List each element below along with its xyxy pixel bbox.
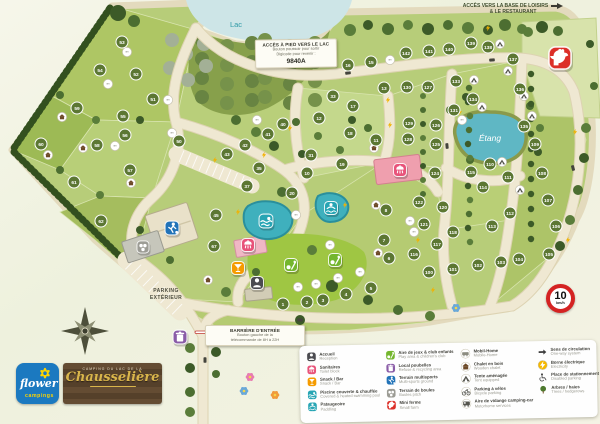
reception-icon [251,277,265,292]
svg-text:5: 5 [370,286,373,292]
rv-icon [462,399,472,409]
pitch-43: 43 [221,148,233,160]
campsite-name: Chausselière [63,371,162,385]
legend-item: Borne électriqueElectricity [538,359,596,370]
pitch-142: 142 [400,47,412,59]
tent-marker [495,39,504,48]
shower-icon [307,364,317,374]
pitch-131: 131 [448,104,460,116]
pitch-61: 61 [68,176,80,188]
svg-text:109: 109 [531,142,539,148]
svg-text:7: 7 [383,238,386,244]
pitch-114: 114 [477,181,489,193]
paddling-icon [307,402,317,412]
pitch-103: 103 [495,256,507,268]
svg-text:121: 121 [420,222,428,228]
chalet-icon [461,361,471,371]
pitch-11: 11 [370,134,382,146]
svg-text:1: 1 [282,302,285,308]
pitch-60: 60 [35,138,47,150]
pitch-141: 141 [423,45,435,57]
multisport-ground-icon [165,221,180,237]
pitch-109: 109 [529,138,541,150]
pitch-106: 106 [550,220,562,232]
svg-text:4: 4 [345,292,348,298]
svg-text:3: 3 [322,298,325,304]
legend-item: Snack / BarSnack / Bar [307,376,379,388]
legend-item: Arbres / haiesTrees / hedgerows [538,384,596,395]
svg-text:104: 104 [515,257,523,263]
tent-marker [477,102,486,111]
pitch-137: 137 [507,53,519,65]
svg-text:42: 42 [242,143,248,149]
legend-column-2: Aire de jeux & club enfantsPlay area & c… [385,349,455,417]
svg-text:11: 11 [373,138,378,144]
pitch-121: 121 [418,218,430,230]
legend-item: Mobil-HomeMobile-Home [460,347,530,358]
svg-text:56: 56 [122,133,128,139]
flower-wordmark: flower [20,377,58,390]
pitch-104: 104 [513,253,525,265]
pitch-134: 134 [467,93,479,105]
mh-marker: MH [252,115,261,124]
svg-text:101: 101 [449,267,457,273]
legend-item: Parking à vélosBicycle parking [461,385,531,396]
play-icon [385,350,395,360]
svg-text:103: 103 [497,260,505,266]
bolt-icon [538,360,548,370]
pitch-115: 115 [465,166,477,178]
tent-marker [503,66,512,75]
pitch-110: 110 [484,158,496,170]
play-area-1-icon [285,259,299,274]
pitch-45: 45 [210,209,222,221]
rooster-icon [386,400,396,410]
mh-marker: MH [409,227,418,236]
pitch-5: 5 [365,282,377,294]
chalet-marker [78,143,87,152]
chalet-marker [203,275,212,284]
tree-icon [538,385,548,395]
chalet-marker [371,200,380,209]
svg-text:53: 53 [119,40,125,46]
pitch-135: 135 [518,120,530,132]
svg-text:136: 136 [516,87,524,93]
svg-text:20: 20 [289,191,295,197]
pitch-41: 41 [262,128,274,140]
pitch-8: 8 [380,204,392,216]
chalet-marker [373,248,382,257]
svg-text:118: 118 [449,230,457,236]
svg-text:100: 100 [425,270,433,276]
svg-text:133: 133 [452,79,460,85]
covered-pool-icon [259,214,274,230]
legend-item: Local poubellesRefuse & recycling area [386,361,454,372]
boules-pitch-icon [137,241,151,256]
pitch-102: 102 [472,259,484,271]
svg-text:6: 6 [388,256,391,262]
toilet-block-2-icon [394,164,408,179]
snack-bar-icon [232,262,246,277]
svg-text:112: 112 [506,211,514,217]
svg-text:12: 12 [316,116,322,122]
pitch-18: 18 [344,127,356,139]
leisure-base-sign: ACCÈS VERS LA BASE DE LOISIRS & LE RESTA… [444,3,582,16]
svg-text:62: 62 [98,219,104,225]
multisport-icon [386,375,396,385]
pitch-17: 17 [347,100,359,112]
pitch-57: 57 [124,164,136,176]
legend-item: Place de stationnement PMRDisabled parki… [538,371,596,382]
compass-rose [61,307,109,355]
pitch-107: 107 [542,194,554,206]
pitch-51: 51 [147,93,159,105]
trash-icon [386,363,396,373]
mh-marker: MH [333,273,342,282]
svg-text:40: 40 [280,122,286,128]
svg-text:107: 107 [544,198,552,204]
mh-marker: MH [457,115,466,124]
pitch-33: 33 [327,90,339,102]
pitch-112: 112 [504,207,516,219]
svg-text:108: 108 [538,171,546,177]
lake-gate-code: 9840A [258,57,334,65]
mh-marker: MH [293,282,302,291]
legend-item: Chalet en boisWooden chalet [461,360,531,371]
svg-text:117: 117 [433,242,441,248]
pitch-116: 116 [408,248,420,260]
pitch-52: 52 [130,68,142,80]
svg-text:122: 122 [415,200,423,206]
refuse-area-icon [173,330,188,346]
pitch-42: 42 [239,139,251,151]
svg-text:61: 61 [71,180,77,186]
pitch-139: 139 [465,37,477,49]
pitch-37: 37 [241,180,253,192]
svg-text:60: 60 [38,142,44,148]
mh-marker: MH [311,279,320,288]
pitch-122: 122 [413,196,425,208]
legend-item: SanitairesToilet block [307,363,379,375]
svg-text:45: 45 [213,213,219,219]
pitch-1: 1 [277,298,289,310]
svg-text:124: 124 [431,171,439,177]
svg-text:138: 138 [484,45,492,51]
pitch-128: 128 [402,133,414,145]
svg-text:43: 43 [224,152,230,158]
boules-icon [386,388,396,398]
chausseliere-logo: CAMPING DU LAC DE LA Chausselière [63,363,162,404]
play-area-2-icon [329,254,343,269]
pitch-19: 19 [336,158,348,170]
chalet-marker [57,112,66,121]
tent-marker [515,185,524,194]
bike-icon [461,386,471,396]
svg-text:51: 51 [150,97,156,103]
svg-text:115: 115 [467,170,475,176]
svg-text:127: 127 [424,85,432,91]
tent-marker [527,111,536,120]
svg-text:126: 126 [432,123,440,129]
pitch-3: 3 [317,294,329,306]
wheelchair-icon [538,372,548,382]
svg-text:2: 2 [306,300,309,306]
svg-text:41: 41 [265,132,271,138]
legend-column-1: AccueilReceptionSanitairesToilet blockSn… [306,350,379,418]
svg-text:125: 125 [432,142,440,148]
pitch-113: 113 [486,220,498,232]
lake-label: Lac [230,20,242,29]
mh-marker: MH [110,141,119,150]
svg-text:120: 120 [439,205,447,211]
mini-farm-icon [549,47,573,72]
pitch-120: 120 [437,201,449,213]
snack-icon [307,377,317,387]
pitch-140: 140 [443,43,455,55]
svg-text:16: 16 [345,63,351,69]
pitch-117: 117 [431,238,443,250]
legend-item: Tente aménagéeTent equipped [461,372,531,383]
campsite-map: Étang Lac MHMHMHMHMHMHMHMHMHMHMHMHMHMHMH… [0,0,600,424]
svg-text:110: 110 [486,162,494,168]
pitch-126: 126 [430,119,442,131]
legend-item: Piscine couverte & chaufféeCovered & hea… [307,388,379,400]
svg-text:35: 35 [256,166,262,172]
svg-text:129: 129 [405,121,413,127]
mh-marker: MH [163,95,172,104]
pitch-6: 6 [383,252,395,264]
pitch-108: 108 [536,167,548,179]
svg-text:116: 116 [410,252,418,258]
pitch-111: 111 [502,171,514,183]
chalet-marker [43,150,52,159]
svg-text:130: 130 [403,85,411,91]
svg-text:52: 52 [133,72,139,78]
pitch-130: 130 [401,81,413,93]
svg-text:8: 8 [385,208,388,214]
svg-text:105: 105 [545,252,553,258]
speed-limit-sign: 10 km/h [546,284,575,313]
pitch-105: 105 [543,248,555,260]
legend-item: PataugeoirePaddling [307,401,379,413]
mh-marker: MH [405,216,414,225]
svg-text:114: 114 [479,185,487,191]
chalet-marker [126,178,135,187]
person-icon [306,352,316,362]
svg-text:113: 113 [488,224,496,230]
tent-marker [497,157,506,166]
arrow-icon [537,347,547,357]
svg-text:59: 59 [74,106,80,112]
pitch-56: 56 [119,129,131,141]
svg-text:37: 37 [244,184,250,190]
pitch-15: 15 [365,56,377,68]
lake-access-sign: ACCÈS À PIED VERS LE LAC Bouton poussoir… [255,38,337,68]
pitch-67: 67 [208,240,220,252]
svg-text:131: 131 [450,108,458,114]
pitch-133: 133 [450,75,462,87]
svg-text:55: 55 [120,114,126,120]
svg-text:31: 31 [308,153,314,159]
mh-marker: MH [325,240,334,249]
pitch-129: 129 [403,117,415,129]
svg-text:142: 142 [402,51,410,57]
pitch-100: 100 [423,266,435,278]
pitch-13: 13 [378,82,390,94]
svg-text:50: 50 [176,139,182,145]
pond-label: Étang [479,133,501,143]
svg-text:102: 102 [474,263,482,269]
legend-item: Terrain de boulesBoules pitch [386,387,454,398]
pitch-54: 54 [94,64,106,76]
pitch-62: 62 [95,215,107,227]
toilet-block-1-icon [242,239,256,254]
pitch-35: 35 [253,162,265,174]
legend-item: Terrain multisportsMulti-sports ground [386,374,454,385]
svg-text:54: 54 [97,68,103,74]
pitch-10: 10 [301,167,313,179]
svg-text:33: 33 [330,94,336,100]
svg-text:67: 67 [211,244,217,250]
svg-text:15: 15 [368,60,374,66]
pitch-12: 12 [313,112,325,124]
svg-text:17: 17 [350,104,356,110]
mh-marker: MH [355,267,364,276]
tent-marker [469,75,478,84]
legend-item: Aire de vidange camping-carMotorhome ser… [462,398,532,409]
legend-item: Sens de circulationOne-way system [537,346,595,357]
pitch-136: 136 [514,83,526,95]
flower-campings-logo: flower campings [16,363,59,404]
legend-column-3: Mobil-HomeMobile-HomeChalet en boisWoode… [460,347,531,415]
pitch-7: 7 [378,234,390,246]
svg-text:106: 106 [552,224,560,230]
pitch-2: 2 [301,296,313,308]
svg-text:140: 140 [445,47,453,53]
outdoor-parking-label: PARKING EXTÉRIEUR [140,288,192,301]
svg-text:18: 18 [347,131,353,137]
tent-icon [461,374,471,384]
mh-marker: MH [291,210,300,219]
pitch-138: 138 [482,41,494,53]
pitch-53: 53 [116,36,128,48]
svg-text:135: 135 [520,124,528,130]
pitch-40: 40 [277,118,289,130]
pitch-55: 55 [117,110,129,122]
pitch-20: 20 [286,187,298,199]
legend-item: AccueilReception [306,350,378,362]
pitch-59: 59 [71,102,83,114]
svg-text:128: 128 [404,137,412,143]
mh-marker: MH [122,47,131,56]
legend-column-4: Sens de circulationOne-way systemBorne é… [537,346,596,414]
mh-marker: MH [385,55,394,64]
pitch-127: 127 [422,81,434,93]
pitch-31: 31 [305,149,317,161]
mobilhome-icon [460,349,470,359]
mh-marker: MH [103,79,112,88]
legend-item: Aire de jeux & club enfantsPlay area & c… [385,349,453,360]
svg-text:13: 13 [381,86,387,92]
pitch-4: 4 [340,288,352,300]
pitch-50: 50 [173,135,185,147]
entrance-barrier-sign: BARRIÈRE D'ENTRÉE Bouton gauche de la té… [205,325,305,346]
pitch-101: 101 [447,263,459,275]
svg-text:19: 19 [339,162,345,168]
pitch-58: 58 [91,139,103,151]
svg-text:10: 10 [304,171,310,177]
svg-text:137: 137 [509,57,517,63]
pitch-118: 118 [447,226,459,238]
paddling-pool-icon [325,202,339,217]
legend-panel: AccueilReceptionSanitairesToilet blockSn… [299,340,598,423]
svg-text:141: 141 [425,49,433,55]
swim-icon [307,390,317,400]
pitch-16: 16 [342,59,354,71]
svg-text:57: 57 [127,168,133,174]
svg-text:139: 139 [467,41,475,47]
pitch-125: 125 [430,138,442,150]
svg-text:111: 111 [504,175,512,181]
svg-text:58: 58 [94,143,100,149]
svg-text:134: 134 [469,97,477,103]
legend-item: Mini fermeSmall farm [386,399,454,410]
pitch-124: 124 [429,167,441,179]
